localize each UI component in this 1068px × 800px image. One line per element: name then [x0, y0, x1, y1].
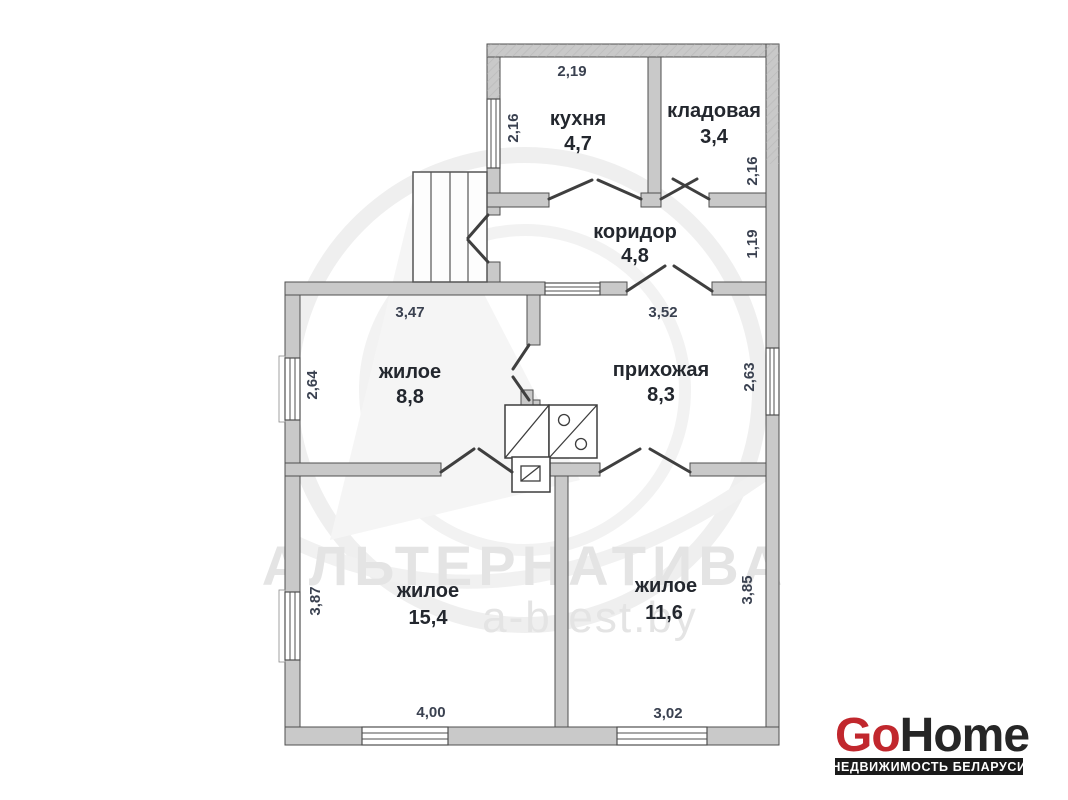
window-living-large-left — [279, 590, 300, 662]
room-label-living-medium: жилое — [634, 575, 697, 597]
room-label-kitchen: кухня — [550, 108, 606, 130]
wall-bottom-1 — [285, 727, 362, 745]
watermark-agency-name: АЛЬТЕРНАТИВА — [262, 534, 789, 597]
room-label-corridor: коридор — [593, 221, 677, 243]
dim-living-small-width: 3,47 — [395, 304, 424, 321]
logo-tagline: НЕДВИЖИМОСТЬ БЕЛАРУСИ — [831, 760, 1026, 774]
dim-kitchen-height: 2,16 — [505, 113, 522, 142]
logo-wordmark: GoHome — [835, 709, 1029, 762]
wall-middle-top-1 — [285, 282, 545, 295]
wall-bottom-rooms-divider — [555, 476, 568, 727]
wall-kitchen-pantry-divider — [648, 57, 661, 193]
wall-left-2 — [285, 420, 300, 592]
room-area-living-large: 15,4 — [409, 607, 449, 629]
dim-living-large-width: 4,00 — [416, 704, 445, 721]
wall-right-lower — [766, 415, 779, 745]
wall-corridor-top-1 — [487, 193, 549, 207]
window-living-large-bottom — [362, 727, 448, 745]
wall-corridor-top-2 — [641, 193, 661, 207]
logo-go: Go — [835, 709, 900, 762]
wall-lower-top-1 — [285, 463, 441, 476]
door-pantry — [661, 179, 709, 199]
room-area-corridor: 4,8 — [621, 245, 649, 267]
floor-plan: АЛЬТЕРНАТИВА a-brest.by — [0, 0, 1068, 800]
window-hallway — [766, 348, 779, 415]
dim-hallway-width: 3,52 — [648, 304, 677, 321]
room-area-living-small: 8,8 — [396, 386, 424, 408]
room-area-pantry: 3,4 — [700, 126, 729, 148]
wall-lower-top-3 — [690, 463, 766, 476]
dim-hallway-height: 2,63 — [741, 362, 758, 391]
wall-bottom-3 — [707, 727, 779, 745]
wall-left-3 — [285, 660, 300, 727]
dim-corridor-height: 1,19 — [744, 229, 761, 258]
room-area-living-medium: 11,6 — [645, 602, 683, 624]
wall-middle-top-2 — [600, 282, 627, 295]
window-corridor-transom — [545, 283, 600, 295]
wall-left-1 — [285, 295, 300, 358]
room-area-hallway: 8,3 — [647, 384, 675, 406]
window-living-medium-bottom — [617, 727, 707, 745]
dim-living-large-height: 3,87 — [307, 586, 324, 615]
room-area-kitchen: 4,7 — [564, 133, 592, 155]
dim-pantry-height: 2,16 — [744, 156, 761, 185]
room-label-living-large: жилое — [396, 580, 459, 602]
wall-corridor-top-3 — [709, 193, 766, 207]
dim-kitchen-width: 2,19 — [557, 63, 586, 80]
wall-living-small-right-1 — [527, 295, 540, 345]
room-label-pantry: кладовая — [667, 100, 761, 122]
chimney — [512, 457, 550, 492]
window-living-small — [279, 356, 300, 422]
dim-living-small-height: 2,64 — [304, 370, 321, 400]
dim-living-medium-width: 3,02 — [653, 705, 682, 722]
dim-living-medium-height: 3,85 — [739, 575, 756, 604]
gohome-logo: GoHome НЕДВИЖИМОСТЬ БЕЛАРУСИ — [831, 709, 1029, 775]
window-kitchen — [487, 99, 500, 168]
wall-middle-top-3 — [712, 282, 766, 295]
room-label-living-small: жилое — [378, 361, 441, 383]
wall-bottom-2 — [448, 727, 617, 745]
room-label-hallway: прихожая — [613, 359, 709, 381]
wall-kitchen-left-lower — [487, 168, 500, 215]
logo-home: Home — [900, 709, 1030, 762]
